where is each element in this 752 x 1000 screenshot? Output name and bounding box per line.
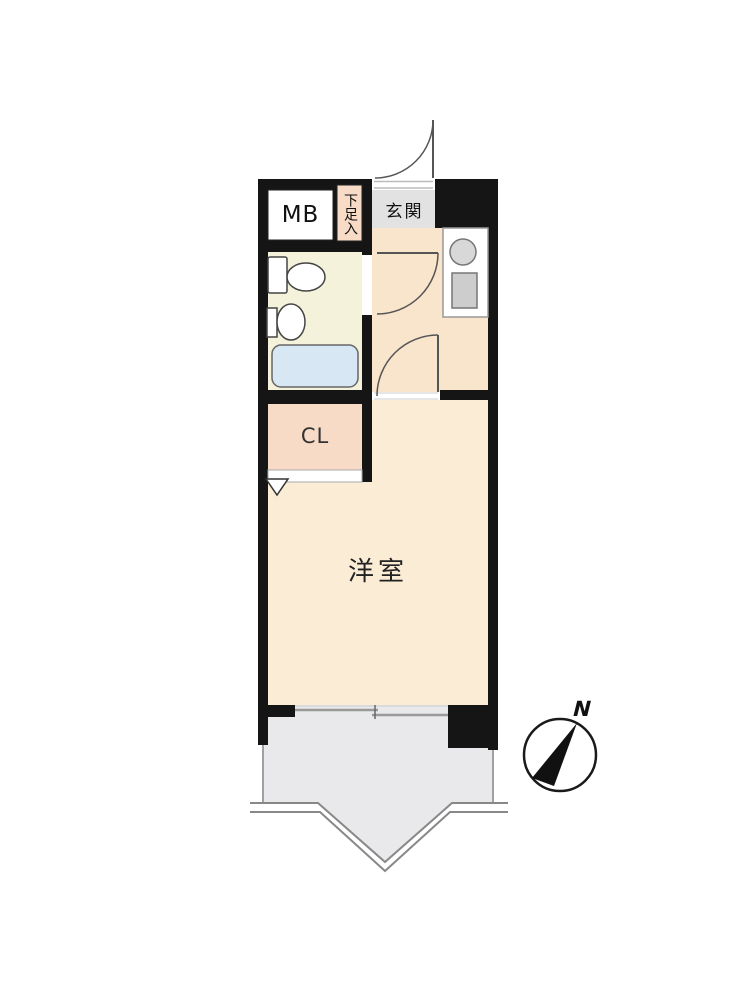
western-room-label: 洋室 xyxy=(268,540,488,598)
wall-room-bottom-right xyxy=(448,705,498,748)
floor-plan: MB 下足入 玄関 CL 洋室 N xyxy=(0,0,752,1000)
toilet-tank-icon xyxy=(268,257,287,293)
compass-north-label: N xyxy=(557,696,607,722)
bathtub-icon xyxy=(272,345,358,387)
shoe-cabinet-label: 下足入 xyxy=(336,186,363,242)
entrance-door-arc xyxy=(375,120,433,178)
floor-plan-drawing xyxy=(0,0,752,1000)
closet-label: CL xyxy=(268,404,362,468)
wall-bathroom-bottom xyxy=(258,390,372,404)
wall-mid-upper xyxy=(362,179,372,255)
entrance-label: 玄関 xyxy=(372,190,437,228)
wall-left xyxy=(258,179,268,745)
wall-right xyxy=(488,179,498,750)
toilet-bowl-icon xyxy=(287,263,325,291)
meter-box-label: MB xyxy=(268,190,333,240)
washbasin-pedestal-icon xyxy=(267,308,277,337)
wall-kitchen-room xyxy=(440,390,498,400)
kitchen-sink-icon xyxy=(452,273,477,308)
wall-room-bottom-left xyxy=(258,705,295,717)
stove-burner-icon xyxy=(450,239,476,265)
washbasin-bowl-icon xyxy=(277,304,305,340)
